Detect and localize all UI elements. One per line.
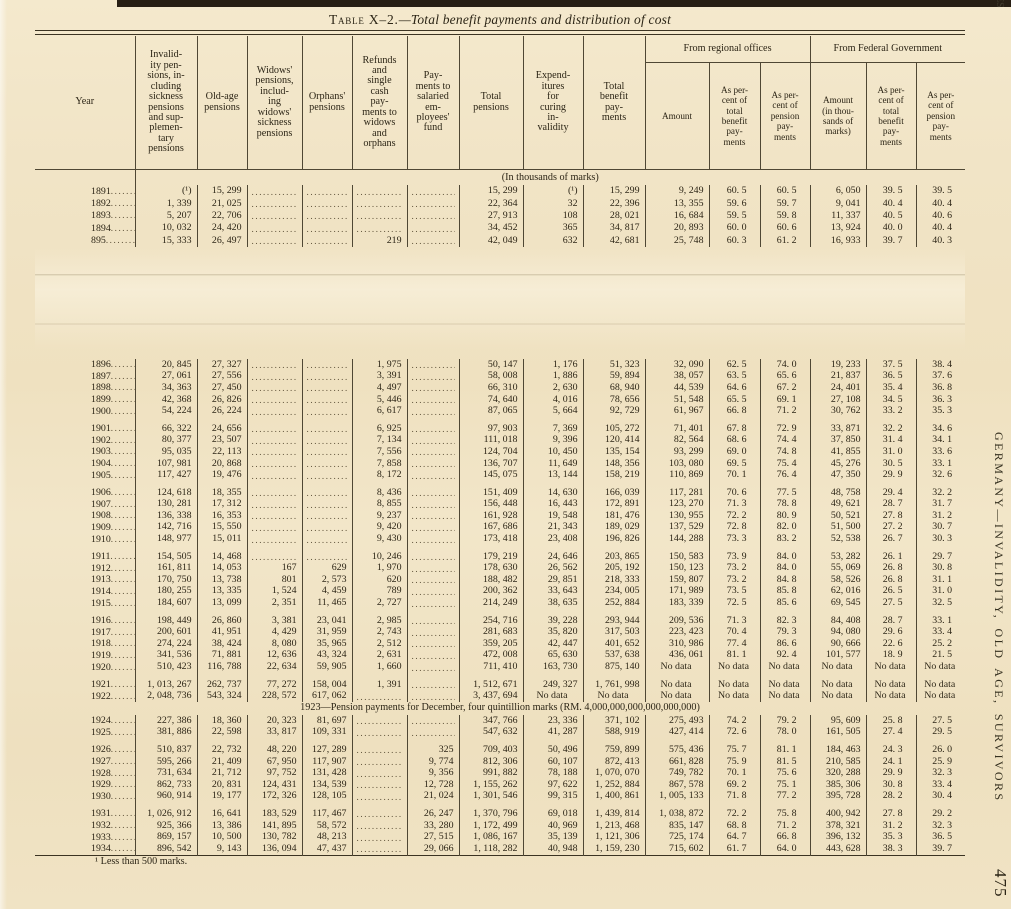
data-cell: 436, 061 [645, 650, 709, 662]
data-cell: 21, 343 [523, 522, 583, 534]
data-cell: 862, 733 [135, 779, 197, 791]
data-cell: 53, 282 [810, 551, 866, 563]
data-cell: 34, 452 [459, 222, 523, 234]
data-cell: No data [523, 690, 583, 702]
data-cell: 320, 288 [810, 767, 866, 779]
data-cell: 178, 630 [459, 562, 523, 574]
data-cell: No data [916, 690, 965, 702]
data-cell: 85. 6 [760, 597, 810, 609]
data-cell: 40. 6 [916, 210, 965, 222]
data-cell: 107, 981 [135, 458, 197, 470]
data-cell: 161, 505 [810, 727, 866, 739]
data-cell: 32. 3 [916, 767, 965, 779]
table-row: 19222, 048, 736543, 324228, 572617, 0623… [35, 690, 965, 702]
data-cell: 33. 1 [916, 615, 965, 627]
data-cell: 26. 7 [866, 533, 916, 545]
data-cell: 22, 598 [197, 727, 247, 739]
data-cell: 84. 0 [760, 551, 810, 563]
data-cell: 200, 601 [135, 626, 197, 638]
data-cell: 78, 656 [583, 394, 645, 406]
col-header-regional-pct-pension: As per- cent of pension pay- ments [760, 63, 810, 170]
data-cell: 7, 134 [352, 435, 407, 447]
year-cell: 1934 [35, 843, 135, 855]
data-cell: 41, 287 [523, 727, 583, 739]
data-cell [407, 435, 459, 447]
data-cell [407, 222, 459, 234]
data-cell [352, 843, 407, 855]
data-cell: 8, 172 [352, 469, 407, 481]
data-cell: 80. 9 [760, 510, 810, 522]
data-cell: 6, 050 [810, 185, 866, 197]
data-cell: 896, 542 [135, 843, 197, 855]
table-row: 1913170, 75013, 7388012, 573620188, 4822… [35, 574, 965, 586]
data-cell: 45, 276 [810, 458, 866, 470]
table-row: 1917200, 60141, 9514, 42931, 9592, 74328… [35, 626, 965, 638]
year-cell: 1927 [35, 756, 135, 768]
data-cell: 33, 817 [247, 727, 302, 739]
data-cell: 62, 016 [810, 586, 866, 598]
year-cell: 1897 [35, 371, 135, 383]
data-cell [352, 715, 407, 727]
data-cell: 67. 2 [760, 382, 810, 394]
col-header-total-pensions: Total pensions [459, 36, 523, 170]
data-cell: 27. 5 [916, 715, 965, 727]
table-row: 1891(¹)15, 29915, 299(¹)15, 2999, 24960.… [35, 185, 965, 197]
data-cell: 73. 3 [709, 533, 760, 545]
year-cell: 1917 [35, 626, 135, 638]
data-cell: 173, 418 [459, 533, 523, 545]
data-cell: 72. 6 [709, 727, 760, 739]
data-cell: 108 [523, 210, 583, 222]
data-cell [407, 597, 459, 609]
table-row: 1924227, 38618, 36020, 32381, 697347, 76… [35, 715, 965, 727]
data-cell: 34, 363 [135, 382, 197, 394]
data-cell: 991, 882 [459, 767, 523, 779]
data-cell: 72. 2 [709, 808, 760, 820]
data-cell: 77. 2 [760, 791, 810, 803]
data-cell: 75. 4 [760, 458, 810, 470]
data-cell [407, 510, 459, 522]
data-cell: 1, 660 [352, 661, 407, 673]
data-cell [247, 551, 302, 563]
year-cell: 1932 [35, 820, 135, 832]
data-cell: 183, 529 [247, 808, 302, 820]
data-cell: 27. 2 [866, 522, 916, 534]
data-cell: 39. 7 [866, 235, 916, 247]
data-cell: 158, 004 [302, 679, 352, 691]
data-cell: 8, 855 [352, 498, 407, 510]
data-cell: 52, 538 [810, 533, 866, 545]
data-cell: 16, 684 [645, 210, 709, 222]
data-cell [407, 210, 459, 222]
data-cell: 111, 018 [459, 435, 523, 447]
data-cell: 64. 6 [709, 382, 760, 394]
data-cell: 33. 1 [916, 458, 965, 470]
data-cell: 25, 748 [645, 235, 709, 247]
data-cell: 40. 3 [916, 235, 965, 247]
data-cell: 15, 299 [583, 185, 645, 197]
data-cell: 103, 080 [645, 458, 709, 470]
table-row: 190054, 22426, 2246, 61787, 0655, 66492,… [35, 405, 965, 417]
data-cell: 109, 331 [302, 727, 352, 739]
data-cell: 1, 301, 546 [459, 791, 523, 803]
year-cell: 1925 [35, 727, 135, 739]
col-header-old-age-pensions: Old-age pensions [197, 36, 247, 170]
page-edge-highlight [0, 0, 7, 909]
data-cell: 26, 826 [197, 394, 247, 406]
year-cell: 1894 [35, 222, 135, 234]
data-cell: 62. 5 [709, 359, 760, 371]
data-cell: 69, 018 [523, 808, 583, 820]
data-cell: 21, 024 [407, 791, 459, 803]
data-cell: 67, 950 [247, 756, 302, 768]
year-cell: 1920 [35, 661, 135, 673]
data-cell [302, 423, 352, 435]
data-cell: 10, 450 [523, 446, 583, 458]
data-cell: 130, 955 [645, 510, 709, 522]
data-cell: 33. 2 [866, 405, 916, 417]
data-cell: 749, 782 [645, 767, 709, 779]
data-cell: 325 [407, 744, 459, 756]
data-cell: 32. 2 [916, 487, 965, 499]
data-cell: 93, 299 [645, 446, 709, 458]
data-cell: 4, 016 [523, 394, 583, 406]
table-row: 1929862, 73320, 831124, 431134, 53912, 7… [35, 779, 965, 791]
data-cell: 65. 6 [760, 371, 810, 383]
data-cell: 35. 4 [866, 382, 916, 394]
data-cell: 42, 368 [135, 394, 197, 406]
data-cell [352, 690, 407, 702]
data-cell: 63. 5 [709, 371, 760, 383]
data-cell: 21, 712 [197, 767, 247, 779]
data-cell: 22, 706 [197, 210, 247, 222]
data-cell: 395, 728 [810, 791, 866, 803]
data-cell: 81, 697 [302, 715, 352, 727]
data-cell: 9, 420 [352, 522, 407, 534]
data-cell: 73. 2 [709, 562, 760, 574]
data-cell: 69. 1 [760, 394, 810, 406]
data-cell: 26, 562 [523, 562, 583, 574]
data-cell: 10, 032 [135, 222, 197, 234]
table-row: 189620, 84527, 3271, 97550, 1471, 17651,… [35, 359, 965, 371]
data-cell: 50, 147 [459, 359, 523, 371]
data-cell: 20, 831 [197, 779, 247, 791]
data-cell: 18. 9 [866, 650, 916, 662]
table-row: 189942, 36826, 8265, 44674, 6404, 01678,… [35, 394, 965, 406]
data-cell: 74. 0 [760, 359, 810, 371]
year-cell: 1914 [35, 586, 135, 598]
data-cell: 65. 5 [709, 394, 760, 406]
data-cell: 40. 0 [866, 222, 916, 234]
data-cell [407, 498, 459, 510]
data-cell: 35, 139 [523, 831, 583, 843]
data-cell: 9, 356 [407, 767, 459, 779]
data-cell: 27. 8 [866, 510, 916, 522]
data-cell: 183, 339 [645, 597, 709, 609]
data-cell: 24, 646 [523, 551, 583, 563]
data-cell: 26. 1 [866, 551, 916, 563]
data-cell: 38, 424 [197, 638, 247, 650]
data-cell: 1, 013, 267 [135, 679, 197, 691]
data-cell [247, 197, 302, 209]
data-cell [247, 235, 302, 247]
table-row: 1911154, 50514, 46810, 246179, 21924, 64… [35, 551, 965, 563]
data-cell: 66, 322 [135, 423, 197, 435]
data-cell: 731, 634 [135, 767, 197, 779]
data-cell [247, 435, 302, 447]
data-cell: 2, 985 [352, 615, 407, 627]
col-header-curing-expenditures: Expend- itures for curing in- validity [523, 36, 583, 170]
data-cell: 2, 631 [352, 650, 407, 662]
col-header-year: Year [35, 36, 135, 170]
data-cell: 27, 450 [197, 382, 247, 394]
data-cell [247, 210, 302, 222]
data-cell: 167, 686 [459, 522, 523, 534]
data-cell: 227, 386 [135, 715, 197, 727]
data-cell: 443, 628 [810, 843, 866, 855]
data-cell [302, 446, 352, 458]
data-cell [407, 586, 459, 598]
data-cell: 51, 548 [645, 394, 709, 406]
data-cell [247, 498, 302, 510]
data-cell: 875, 140 [583, 661, 645, 673]
data-cell: 22, 396 [583, 197, 645, 209]
col-header-regional-pct-total: As per- cent of total benefit pay- ments [709, 63, 760, 170]
year-cell: 1907 [35, 498, 135, 510]
table-row: 1909142, 71615, 5509, 420167, 68621, 343… [35, 522, 965, 534]
data-cell: 32 [523, 197, 583, 209]
data-cell: 5, 664 [523, 405, 583, 417]
data-cell: 9, 430 [352, 533, 407, 545]
data-cell: 117, 281 [645, 487, 709, 499]
data-cell [302, 487, 352, 499]
data-cell: 1, 970 [352, 562, 407, 574]
data-cell: 71. 3 [709, 498, 760, 510]
table-row: 19211, 013, 267262, 73777, 272158, 0041,… [35, 679, 965, 691]
data-cell: 92. 4 [760, 650, 810, 662]
data-cell [352, 197, 407, 209]
col-header-total-benefit-payments: Total benefit pay- ments [583, 36, 645, 170]
data-cell: 203, 865 [583, 551, 645, 563]
data-cell: 1, 159, 230 [583, 843, 645, 855]
data-cell: 130, 782 [247, 831, 302, 843]
table-row: 1928731, 63421, 71297, 752131, 4289, 356… [35, 767, 965, 779]
data-cell: 33, 643 [523, 586, 583, 598]
data-cell: 124, 431 [247, 779, 302, 791]
data-cell: 144, 288 [645, 533, 709, 545]
data-cell: 22. 6 [866, 638, 916, 650]
data-cell: 39. 5 [916, 185, 965, 197]
footnote: ¹ Less than 500 marks. [95, 856, 187, 867]
table-row: 189834, 36327, 4504, 49766, 3102, 63068,… [35, 382, 965, 394]
data-cell: 59, 905 [302, 661, 352, 673]
table-title-text: —Total benefit payments and distribution… [399, 12, 671, 27]
data-cell: 50, 496 [523, 744, 583, 756]
col-header-federal-pct-total: As per- cent of total benefit pay- ments [866, 63, 916, 170]
data-cell: 38. 4 [916, 359, 965, 371]
data-cell: 2, 351 [247, 597, 302, 609]
page-number: 475 [990, 869, 1010, 898]
data-cell: 77. 4 [709, 638, 760, 650]
table-title-number: Table X–2. [329, 12, 399, 27]
data-cell: 51, 500 [810, 522, 866, 534]
data-cell: 33, 871 [810, 423, 866, 435]
col-header-federal-amount: Amount (in thou- sands of marks) [810, 63, 866, 170]
data-cell: 73. 5 [709, 586, 760, 598]
table-row: 1930960, 91419, 177172, 326128, 10521, 0… [35, 791, 965, 803]
data-cell [352, 831, 407, 843]
data-cell: 42, 447 [523, 638, 583, 650]
table-row: 1919341, 53671, 88112, 63643, 3242, 6314… [35, 650, 965, 662]
data-cell: 66, 310 [459, 382, 523, 394]
data-cell: 90, 666 [810, 638, 866, 650]
data-cell [407, 469, 459, 481]
data-cell: 35. 3 [916, 405, 965, 417]
table-row: 1907130, 28117, 3128, 855156, 44816, 443… [35, 498, 965, 510]
table-row: 189410, 03224, 42034, 45236534, 81720, 8… [35, 222, 965, 234]
data-cell: 1, 339 [135, 197, 197, 209]
data-cell: 36. 3 [916, 394, 965, 406]
data-cell: 31. 0 [866, 446, 916, 458]
data-cell: 85. 8 [760, 586, 810, 598]
data-cell: 22, 732 [197, 744, 247, 756]
data-cell: 25. 2 [916, 638, 965, 650]
data-cell [407, 661, 459, 673]
data-cell [247, 510, 302, 522]
data-cell [247, 458, 302, 470]
double-rule [35, 30, 965, 35]
data-cell [302, 185, 352, 197]
data-cell: 5, 207 [135, 210, 197, 222]
data-cell [407, 446, 459, 458]
data-cell: 960, 914 [135, 791, 197, 803]
year-cell: 1924 [35, 715, 135, 727]
margin-running-title: GERMANY—INVALIDITY, OLD AGE, SURVIVORS [991, 432, 1006, 802]
data-cell: 23, 041 [302, 615, 352, 627]
table-row: 1910148, 97715, 0119, 430173, 41823, 408… [35, 533, 965, 545]
data-cell [407, 382, 459, 394]
data-cell: 11, 649 [523, 458, 583, 470]
data-cell [247, 382, 302, 394]
data-cell [247, 446, 302, 458]
data-cell: 66. 8 [760, 831, 810, 843]
data-cell: 40. 4 [916, 222, 965, 234]
data-cell: 26, 224 [197, 405, 247, 417]
data-cell: 75. 9 [709, 756, 760, 768]
data-cell: 71. 3 [709, 615, 760, 627]
data-cell: 30. 3 [916, 533, 965, 545]
data-cell: 73. 2 [709, 574, 760, 586]
data-cell: 13, 144 [523, 469, 583, 481]
data-cell [407, 359, 459, 371]
data-cell: 40, 969 [523, 820, 583, 832]
data-cell: 36. 8 [916, 382, 965, 394]
data-cell [352, 222, 407, 234]
data-cell: 32, 090 [645, 359, 709, 371]
col-header-regional-amount: Amount [645, 63, 709, 170]
data-cell: 184, 607 [135, 597, 197, 609]
data-cell: 359, 205 [459, 638, 523, 650]
data-cell: 40. 4 [916, 197, 965, 209]
data-cell: 151, 409 [459, 487, 523, 499]
data-cell: 59. 7 [760, 197, 810, 209]
data-cell: 82, 564 [645, 435, 709, 447]
data-cell: 252, 884 [583, 597, 645, 609]
data-cell: 1, 252, 884 [583, 779, 645, 791]
data-cell: 21, 837 [810, 371, 866, 383]
data-cell: 60. 3 [709, 235, 760, 247]
data-cell: No data [645, 690, 709, 702]
data-cell: 26. 8 [866, 562, 916, 574]
data-cell: 124, 618 [135, 487, 197, 499]
data-cell: 16, 443 [523, 498, 583, 510]
data-cell: 7, 556 [352, 446, 407, 458]
data-cell: No data [645, 661, 709, 673]
data-cell: 105, 272 [583, 423, 645, 435]
data-cell: 1, 005, 133 [645, 791, 709, 803]
year-cell: 1903 [35, 446, 135, 458]
data-cell: 64. 0 [760, 843, 810, 855]
data-cell: 869, 157 [135, 831, 197, 843]
data-cell: 275, 493 [645, 715, 709, 727]
data-cell [352, 210, 407, 222]
data-cell: 69, 545 [810, 597, 866, 609]
data-cell: 29. 2 [916, 808, 965, 820]
data-cell: 41, 855 [810, 446, 866, 458]
data-cell: 196, 826 [583, 533, 645, 545]
table-row: 190280, 37723, 5077, 134111, 0189, 39612… [35, 435, 965, 447]
data-cell: 24, 401 [810, 382, 866, 394]
table-row: 1926510, 83722, 73248, 220127, 289325709… [35, 744, 965, 756]
data-cell: 13, 099 [197, 597, 247, 609]
col-header-salaried-employees-fund: Pay- ments to salaried em- ployees' fund [407, 36, 459, 170]
data-cell: 14, 468 [197, 551, 247, 563]
data-cell: 55, 069 [810, 562, 866, 574]
data-cell: 1, 038, 872 [645, 808, 709, 820]
data-cell: 661, 828 [645, 756, 709, 768]
table-row: 1932925, 36613, 386141, 89558, 57233, 28… [35, 820, 965, 832]
data-cell: 2, 573 [302, 574, 352, 586]
data-cell: 872, 413 [583, 756, 645, 768]
data-cell [302, 469, 352, 481]
year-cell: 1916 [35, 615, 135, 627]
data-cell: 97, 622 [523, 779, 583, 791]
data-cell: 58, 526 [810, 574, 866, 586]
data-cell: 82. 3 [760, 615, 810, 627]
data-cell: 116, 788 [197, 661, 247, 673]
data-cell: 69. 5 [709, 458, 760, 470]
data-cell: 32. 2 [866, 423, 916, 435]
data-cell [247, 423, 302, 435]
data-cell: 142, 716 [135, 522, 197, 534]
data-cell: 223, 423 [645, 626, 709, 638]
data-cell: 632 [523, 235, 583, 247]
data-cell: 43, 324 [302, 650, 352, 662]
data-cell: 170, 750 [135, 574, 197, 586]
data-cell: 161, 928 [459, 510, 523, 522]
data-cell: 69. 0 [709, 446, 760, 458]
data-cell: 110, 869 [645, 469, 709, 481]
table-row: 1934896, 5429, 143136, 09447, 43729, 066… [35, 843, 965, 855]
data-cell: 86. 6 [760, 638, 810, 650]
data-cell: 42, 049 [459, 235, 523, 247]
data-cell: 867, 578 [645, 779, 709, 791]
data-cell: 22, 113 [197, 446, 247, 458]
data-cell: 620 [352, 574, 407, 586]
data-cell: 27, 913 [459, 210, 523, 222]
data-cell: 136, 338 [135, 510, 197, 522]
data-cell [302, 458, 352, 470]
